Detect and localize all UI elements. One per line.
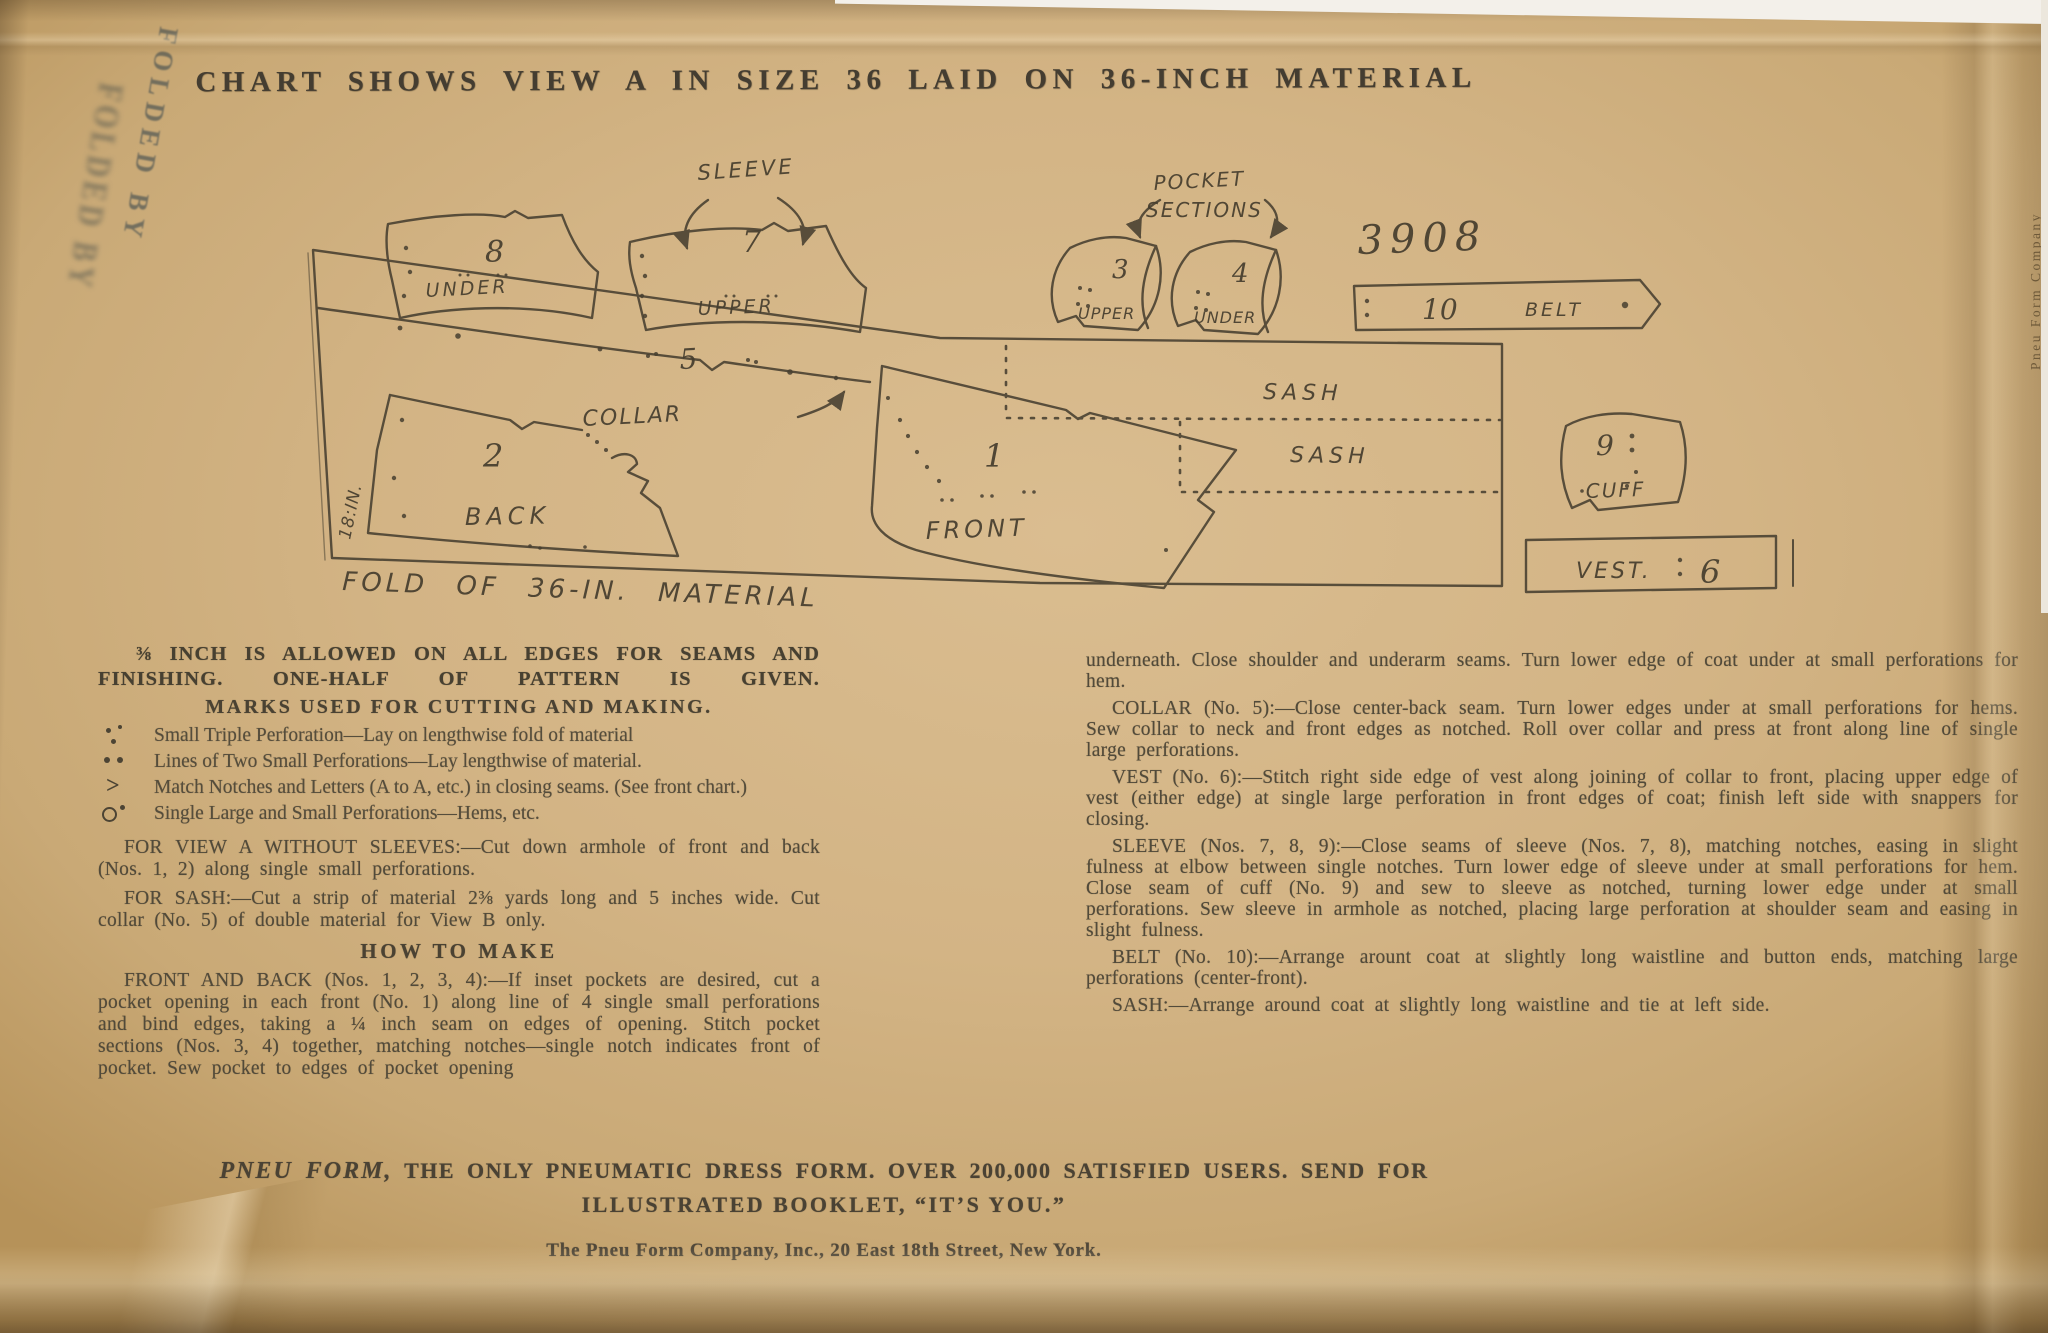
sash-paragraph: SASH:—Arrange around coat at slightly lo… <box>1086 995 2018 1016</box>
piece-2-number: 2 <box>482 437 503 475</box>
marks-heading: MARKS USED FOR CUTTING AND MAKING. <box>98 696 820 719</box>
legend-row-match-notch: > Match Notches and Letters (A to A, etc… <box>98 777 820 801</box>
ad-line-1: PNEU FORM, THE ONLY PNEUMATIC DRESS FORM… <box>0 1158 1648 1185</box>
two-perforations-icon <box>98 751 144 775</box>
piece-8-label: UNDER <box>425 276 509 302</box>
left-column: ⅜ INCH IS ALLOWED ON ALL EDGES FOR SEAMS… <box>98 642 820 1087</box>
piece-7-number: 7 <box>742 225 762 260</box>
footer-advertisement: PNEU FORM, THE ONLY PNEUMATIC DRESS FORM… <box>0 1158 1648 1262</box>
piece-4-number: 4 <box>1231 259 1249 289</box>
piece-8-number: 8 <box>485 235 504 270</box>
piece-9-label: CUFF <box>1585 477 1645 503</box>
how-to-make-heading: HOW TO MAKE <box>98 939 820 964</box>
sash-label-2: SASH <box>1290 443 1370 469</box>
legend-row-two-perforations: Lines of Two Small Perforations—Lay leng… <box>98 751 820 775</box>
sleeve-arrow-left <box>685 200 708 248</box>
sash-label-1: SASH <box>1263 380 1343 406</box>
match-notch-icon: > <box>98 777 144 801</box>
front-back-paragraph: FRONT AND BACK (Nos. 1, 2, 3, 4):—If ins… <box>98 970 820 1080</box>
triple-perforation-icon <box>98 725 144 749</box>
legend-text: Small Triple Perforation—Lay on lengthwi… <box>154 725 820 749</box>
company-address: The Pneu Form Company, Inc., 20 East 18t… <box>0 1240 1648 1262</box>
piece-1-label: FRONT <box>925 513 1028 545</box>
scan-background-right-edge <box>2041 0 2048 613</box>
sleeve-arrow-right <box>778 198 804 244</box>
piece-4-label: UNDER <box>1194 308 1256 327</box>
large-small-perforation-icon <box>98 803 144 827</box>
legend-text: Match Notches and Letters (A to A, etc.)… <box>154 777 820 801</box>
collar-strip-edge <box>318 308 870 382</box>
view-a-paragraph: FOR VIEW A WITHOUT SLEEVES:—Cut down arm… <box>98 837 820 881</box>
collar-arrow <box>798 392 844 417</box>
scan-background-wedge <box>835 0 2048 30</box>
cutting-layout-chart: SLEEVE POCKET SECTIONS 3908 8 UNDER 7 UP… <box>280 120 1840 620</box>
piece-5-label: COLLAR <box>582 402 683 432</box>
sleeve-paragraph: SLEEVE (Nos. 7, 8, 9):—Close seams of sl… <box>1086 836 2018 941</box>
sleeve-callout-label: SLEEVE <box>697 154 796 185</box>
pattern-number: 3908 <box>1357 213 1488 264</box>
vest-paragraph: VEST (No. 6):—Stitch right side edge of … <box>1086 767 2018 830</box>
sash-cut-paragraph: FOR SASH:—Cut a strip of material 2⅜ yar… <box>98 888 820 932</box>
piece-10-number: 10 <box>1422 293 1458 326</box>
stamp-line: FOLDED BY <box>115 25 184 247</box>
pocket-callout-line2: SECTIONS <box>1146 198 1263 222</box>
material-outline <box>313 250 1502 586</box>
fold-label: FOLD OF 36-IN. MATERIAL <box>342 567 819 614</box>
ad-rest: THE ONLY PNEUMATIC DRESS FORM. OVER 200,… <box>392 1158 1428 1183</box>
pocket-callout-line1: POCKET <box>1153 166 1246 195</box>
legend-row-large-small-perforation: Single Large and Small Perforations—Hems… <box>98 803 820 827</box>
ad-brand: PNEU FORM, <box>219 1158 392 1184</box>
seam-allowance-note: ⅜ INCH IS ALLOWED ON ALL EDGES FOR SEAMS… <box>98 642 820 692</box>
belt-paragraph: BELT (No. 10):—Arrange arount coat at sl… <box>1086 947 2018 989</box>
pattern-envelope-back: FOLDED BY FOLDED BY Pneu Form Company CH… <box>0 0 2048 1333</box>
piece-3-label: UPPER <box>1078 304 1135 323</box>
piece-3-number: 3 <box>1112 255 1129 285</box>
piece-7-label: UPPER <box>697 295 775 320</box>
legend-row-triple-perforation: Small Triple Perforation—Lay on lengthwi… <box>98 725 820 749</box>
piece-2-label: BACK <box>465 502 551 531</box>
ad-line-2: ILLUSTRATED BOOKLET, “IT’S YOU.” <box>0 1192 1648 1218</box>
piece-1-number: 1 <box>984 437 1004 475</box>
right-column: underneath. Close shoulder and underarm … <box>1086 650 2018 1022</box>
piece-6-number: 6 <box>1700 553 1720 591</box>
piece-5-number: 5 <box>679 342 699 376</box>
material-width-label: 18:IN. <box>335 482 366 541</box>
collar-paragraph: COLLAR (No. 5):—Close center-back seam. … <box>1086 698 2018 761</box>
legend-text: Lines of Two Small Perforations—Lay leng… <box>154 751 820 775</box>
piece-10-label: BELT <box>1525 299 1583 321</box>
stamp-line-smudge: FOLDED BY <box>59 80 130 294</box>
legend-text: Single Large and Small Perforations—Hems… <box>154 803 820 827</box>
piece-6-label: VEST. <box>1576 559 1652 584</box>
folded-by-stamp: FOLDED BY FOLDED BY <box>118 22 278 332</box>
piece-9-number: 9 <box>1596 429 1614 462</box>
chart-linework <box>308 198 1793 592</box>
pocket-arrow-right <box>1265 200 1277 237</box>
continuation-paragraph: underneath. Close shoulder and underarm … <box>1086 650 2018 692</box>
